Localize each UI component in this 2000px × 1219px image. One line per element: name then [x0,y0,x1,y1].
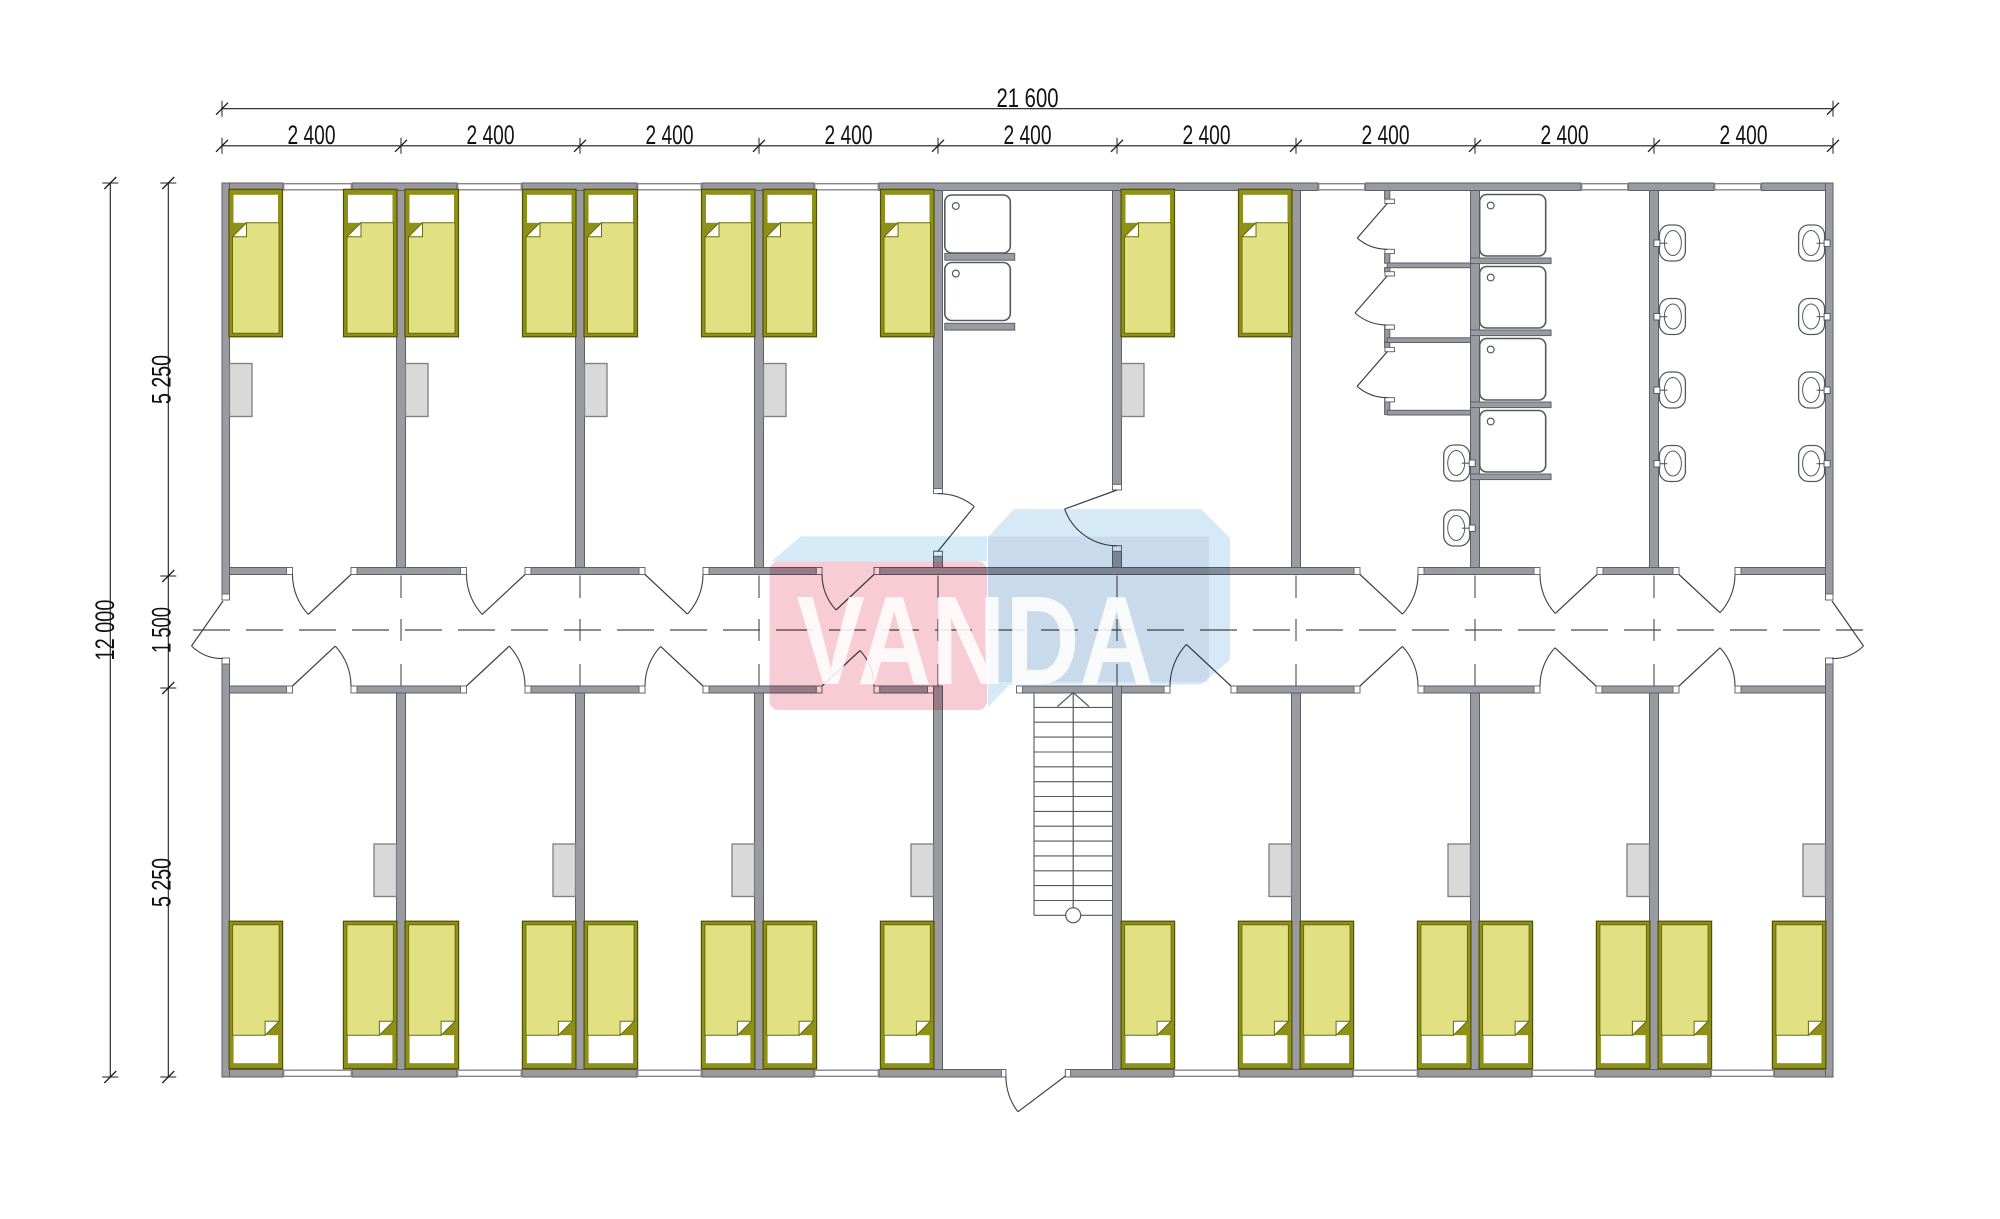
svg-text:2 400: 2 400 [467,120,515,150]
svg-text:2 400: 2 400 [1541,120,1589,150]
svg-text:2 400: 2 400 [1720,120,1768,150]
svg-text:2 400: 2 400 [1004,120,1052,150]
svg-text:2 400: 2 400 [1183,120,1231,150]
svg-text:5 250: 5 250 [147,858,177,907]
svg-text:2 400: 2 400 [646,120,694,150]
svg-text:2 400: 2 400 [1362,120,1410,150]
svg-text:12 000: 12 000 [90,600,120,661]
svg-text:21 600: 21 600 [997,83,1059,113]
svg-text:1 500: 1 500 [147,607,177,653]
svg-text:2 400: 2 400 [825,120,873,150]
svg-text:VANDA: VANDA [797,570,1154,711]
svg-text:5 250: 5 250 [147,355,177,404]
svg-text:2 400: 2 400 [288,120,336,150]
